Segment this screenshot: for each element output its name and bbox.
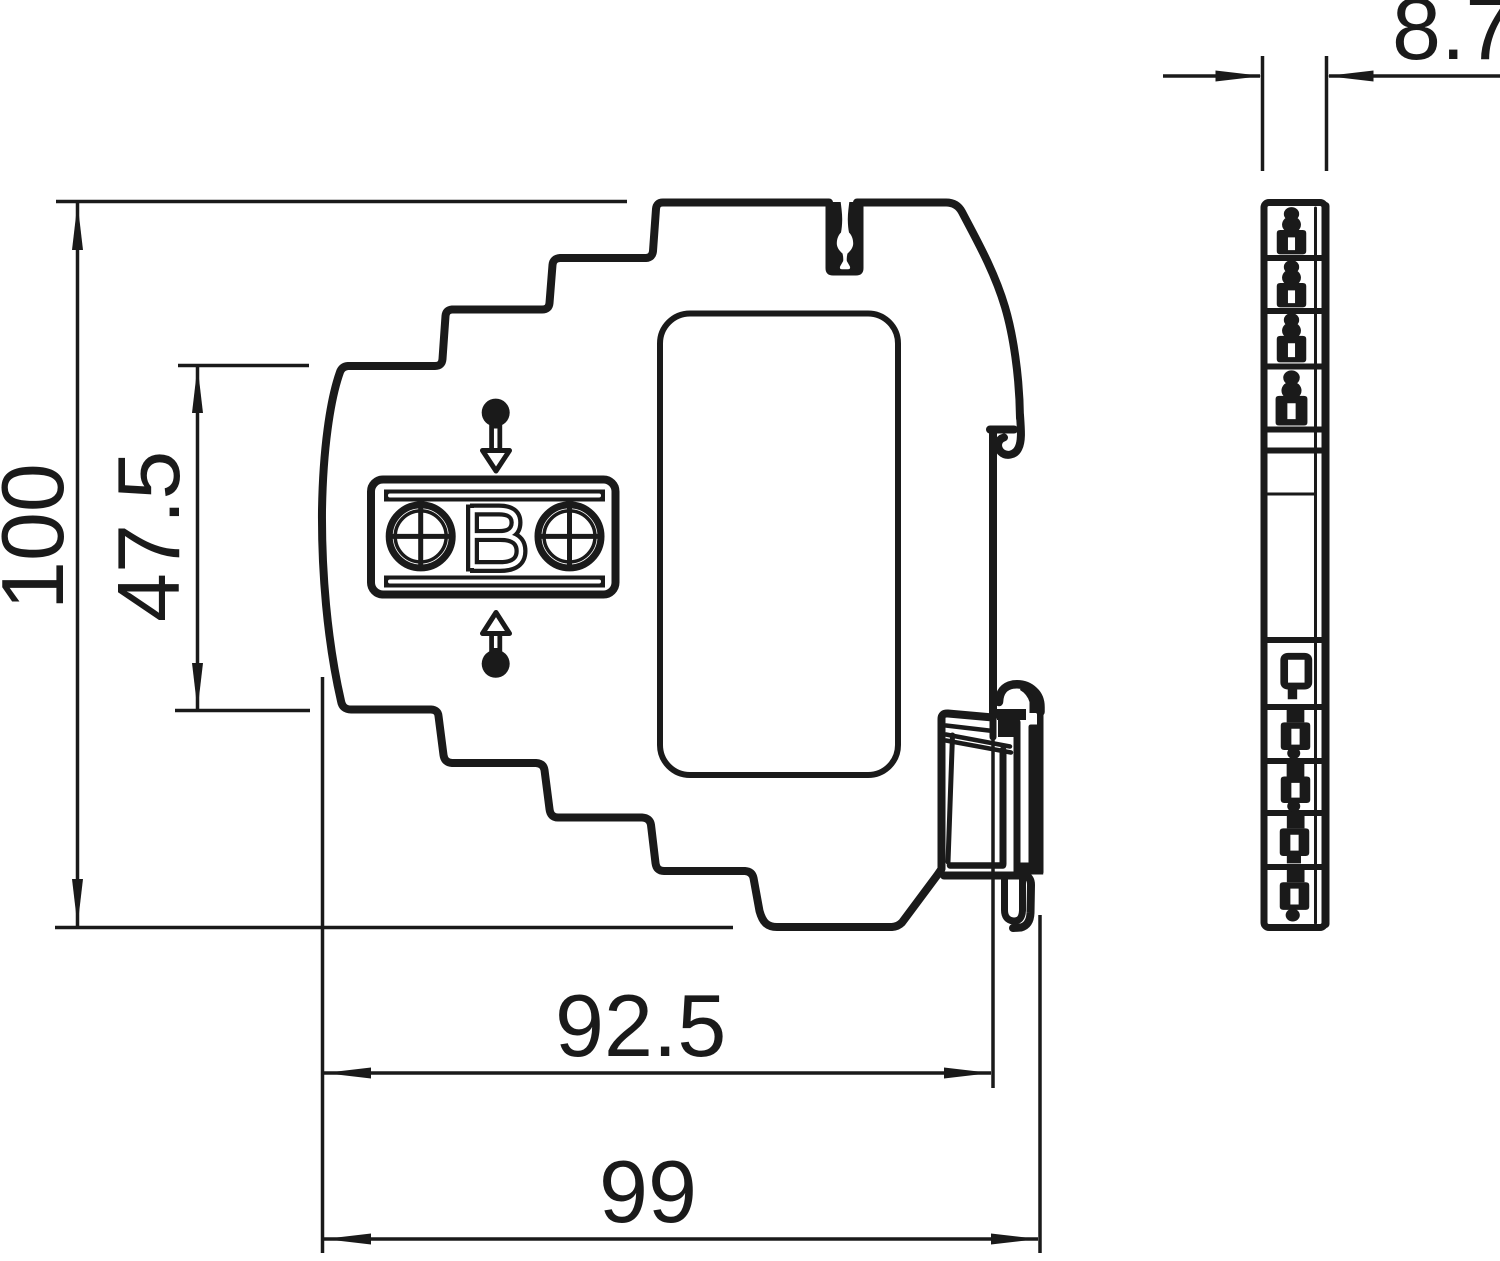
svg-text:99: 99 xyxy=(599,1142,697,1241)
svg-text:8.7: 8.7 xyxy=(1392,0,1500,78)
svg-text:92.5: 92.5 xyxy=(555,976,726,1075)
svg-text:47.5: 47.5 xyxy=(99,451,198,622)
svg-text:100: 100 xyxy=(0,463,82,610)
